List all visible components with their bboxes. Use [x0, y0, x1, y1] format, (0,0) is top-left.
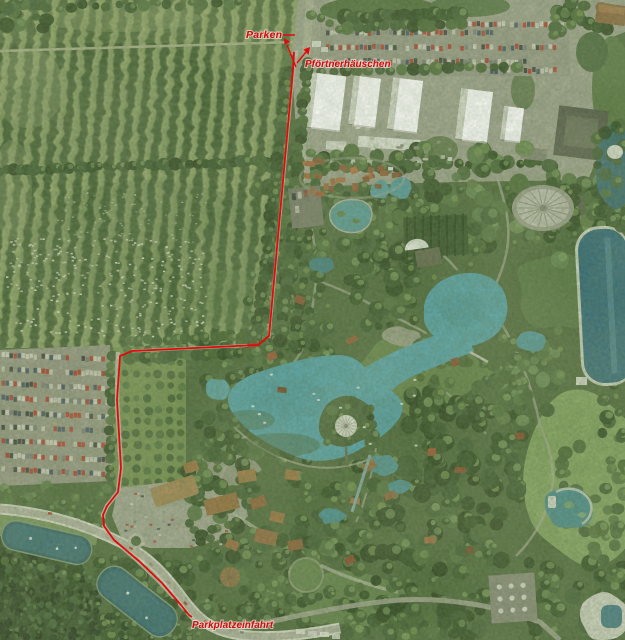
svg-text:Pförtnerhäuschen: Pförtnerhäuschen	[305, 59, 391, 70]
svg-text:Parkplatzeinfahrt: Parkplatzeinfahrt	[192, 620, 274, 631]
svg-text:Parken: Parken	[246, 29, 282, 41]
